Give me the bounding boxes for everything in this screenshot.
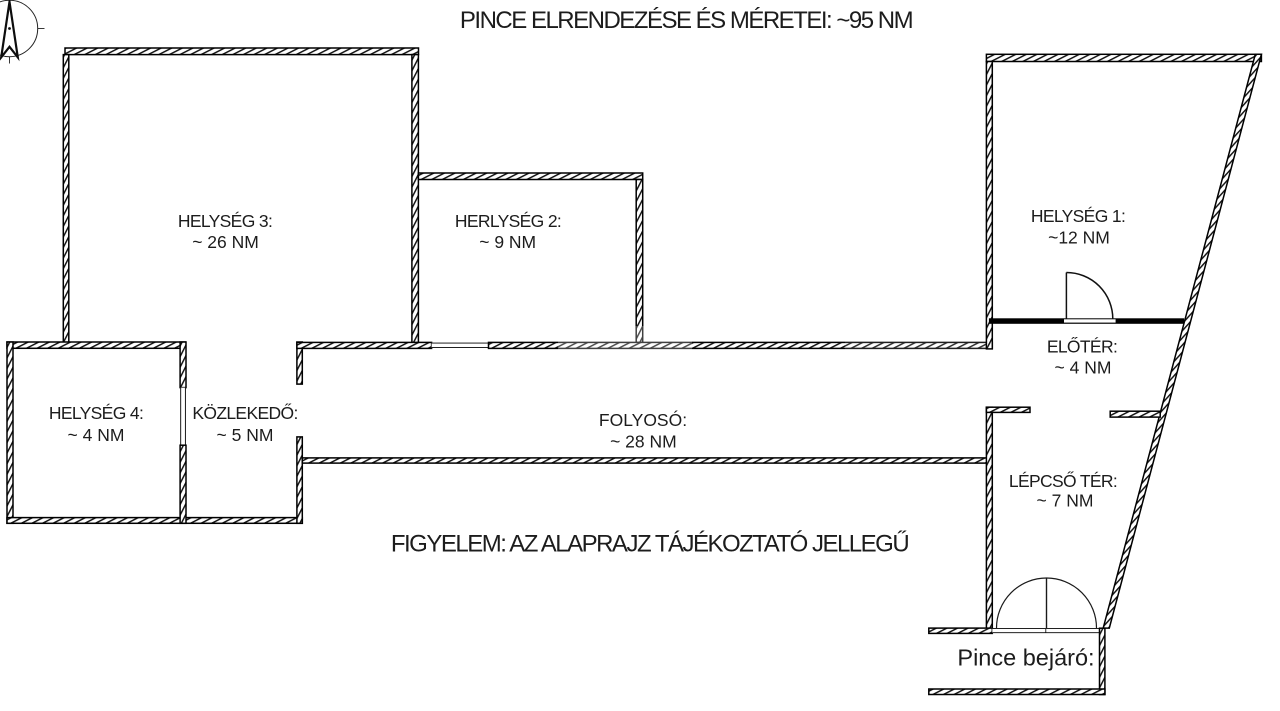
svg-text:FIGYELEM: AZ ALAPRAJZ TÁJÉKOZT: FIGYELEM: AZ ALAPRAJZ TÁJÉKOZTATÓ JELLEG… [391, 531, 908, 558]
svg-text:~ 5 NM: ~ 5 NM [217, 425, 274, 445]
svg-text:ELŐTÉR:: ELŐTÉR: [1047, 336, 1117, 357]
svg-text:~ 7 NM: ~ 7 NM [1037, 491, 1094, 511]
svg-text:FOLYOSÓ:: FOLYOSÓ: [599, 409, 687, 430]
svg-text:~12 NM: ~12 NM [1048, 228, 1110, 248]
svg-text:~ 26 NM: ~ 26 NM [192, 232, 259, 252]
svg-text:Pince bejáró:: Pince bejáró: [957, 645, 1094, 671]
svg-text:~ 9 NM: ~ 9 NM [479, 232, 536, 252]
svg-text:~ 4 NM: ~ 4 NM [1055, 358, 1112, 378]
svg-text:HELYSÉG 4:: HELYSÉG 4: [49, 403, 143, 423]
svg-text:KÖZLEKEDŐ:: KÖZLEKEDŐ: [192, 402, 297, 423]
svg-text:HERLYSÉG 2:: HERLYSÉG 2: [455, 211, 561, 231]
svg-text:~ 4 NM: ~ 4 NM [68, 425, 125, 445]
svg-text:PINCE ELRENDEZÉSE ÉS MÉRETEI:: PINCE ELRENDEZÉSE ÉS MÉRETEI: ~95 NM [460, 7, 913, 34]
svg-text:LÉPCSŐ TÉR:: LÉPCSŐ TÉR: [1009, 470, 1117, 491]
svg-text:~ 28 NM: ~ 28 NM [610, 432, 677, 452]
svg-text:HELYSÉG 3:: HELYSÉG 3: [178, 211, 272, 231]
svg-text:HELYSÉG 1:: HELYSÉG 1: [1031, 206, 1125, 226]
